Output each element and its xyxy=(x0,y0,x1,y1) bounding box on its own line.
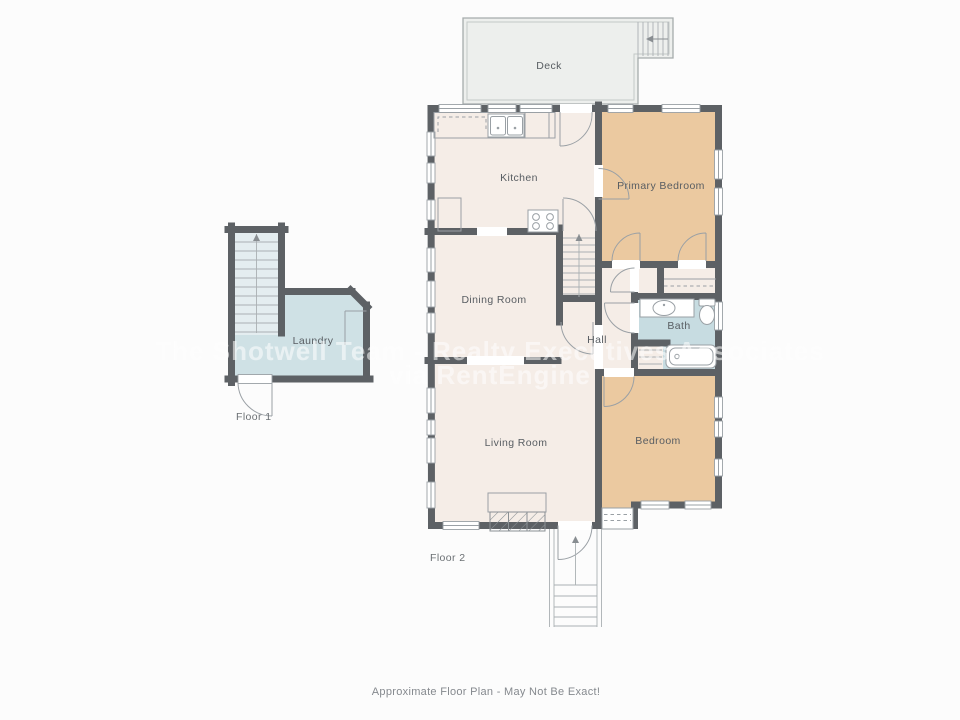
disclaimer-caption: Approximate Floor Plan - May Not Be Exac… xyxy=(372,686,600,698)
floor2-label: Floor 2 xyxy=(430,552,465,564)
room-label-kitchen: Kitchen xyxy=(500,172,538,184)
room-label-primary-bedroom: Primary Bedroom xyxy=(617,180,705,192)
kitchen-stove xyxy=(528,210,558,232)
exterior-stairs-arrow xyxy=(572,536,579,543)
room-label-deck: Deck xyxy=(536,60,562,72)
floor1-plan: Laundry Floor 1 xyxy=(228,226,370,423)
watermark-line2: via RentEngine xyxy=(389,360,591,390)
room-label-bedroom: Bedroom xyxy=(635,435,680,447)
kitchen-sink xyxy=(488,114,524,137)
floor1-entry-gap xyxy=(238,375,272,384)
room-label-dining-room: Dining Room xyxy=(461,294,526,306)
bath-sink xyxy=(653,301,675,316)
deck-area: Deck xyxy=(463,18,673,104)
exterior-stairs xyxy=(550,529,602,627)
floor1-label: Floor 1 xyxy=(236,411,271,423)
deck-floor xyxy=(463,18,673,104)
room-label-bath: Bath xyxy=(667,320,690,332)
bath-toilet xyxy=(699,299,715,325)
floor-plan-page: Deck xyxy=(0,0,960,720)
floor-plan-canvas: Deck xyxy=(0,0,960,720)
bedroom-lower-closet xyxy=(602,508,633,529)
room-label-living-room: Living Room xyxy=(485,437,548,449)
